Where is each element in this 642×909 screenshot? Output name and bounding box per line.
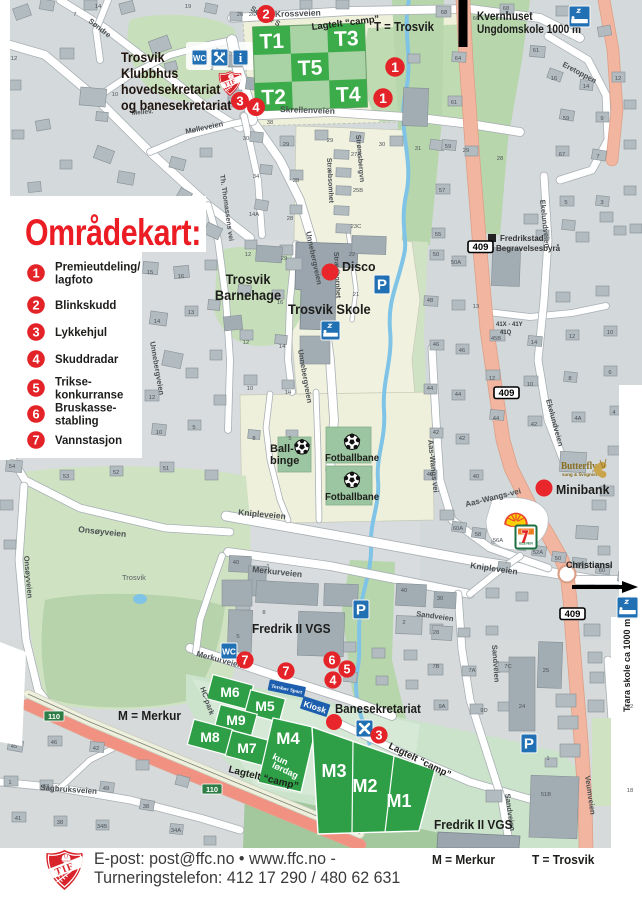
svg-text:25: 25 (543, 668, 549, 674)
svg-text:Lykkehjul: Lykkehjul (55, 326, 107, 339)
svg-text:3: 3 (236, 94, 243, 109)
svg-text:Kvernhuset: Kvernhuset (477, 10, 533, 23)
svg-text:M8: M8 (200, 729, 220, 745)
svg-text:10: 10 (156, 430, 162, 436)
svg-text:46: 46 (51, 740, 57, 746)
svg-text:2: 2 (262, 7, 269, 22)
svg-text:34A: 34A (171, 828, 181, 834)
svg-text:42: 42 (93, 746, 99, 752)
svg-text:55: 55 (435, 232, 441, 238)
svg-text:42: 42 (459, 436, 465, 442)
svg-text:Trosvik: Trosvik (121, 50, 165, 66)
svg-text:Ball-: Ball- (270, 443, 294, 455)
svg-text:38: 38 (57, 820, 63, 826)
svg-text:29: 29 (463, 148, 469, 154)
svg-text:29: 29 (327, 138, 333, 144)
svg-text:M1: M1 (386, 791, 411, 811)
svg-text:60A: 60A (453, 526, 463, 532)
svg-text:1: 1 (379, 90, 387, 106)
svg-text:i: i (239, 51, 243, 65)
svg-text:7: 7 (32, 433, 39, 448)
svg-text:sang & livsgnist: sang & livsgnist (562, 472, 598, 477)
svg-text:14: 14 (95, 4, 102, 10)
svg-text:54: 54 (9, 464, 16, 470)
svg-text:14: 14 (154, 319, 161, 325)
svg-text:M = Merkur: M = Merkur (432, 853, 495, 867)
svg-text:konkurranse: konkurranse (55, 388, 124, 401)
svg-text:21: 21 (353, 292, 359, 298)
svg-text:14: 14 (531, 340, 538, 346)
svg-text:M9: M9 (226, 712, 246, 728)
svg-text:5: 5 (564, 200, 567, 206)
svg-text:Minibank: Minibank (556, 483, 610, 497)
svg-text:26: 26 (237, 12, 243, 18)
svg-text:E-post: post@ffc.no • www.ffc.: E-post: post@ffc.no • www.ffc.no - (94, 850, 336, 868)
svg-text:5: 5 (192, 425, 195, 431)
svg-text:7: 7 (242, 653, 249, 667)
svg-text:49: 49 (103, 786, 109, 792)
svg-text:29: 29 (281, 256, 287, 262)
svg-text:59: 59 (445, 144, 451, 150)
svg-text:22: 22 (349, 252, 355, 258)
svg-text:34: 34 (253, 174, 260, 180)
svg-text:10: 10 (247, 386, 253, 392)
svg-text:14A: 14A (249, 212, 259, 218)
svg-text:1: 1 (391, 59, 399, 75)
svg-text:30: 30 (379, 142, 385, 148)
svg-text:15: 15 (147, 270, 153, 276)
svg-text:29: 29 (283, 142, 289, 148)
svg-text:42: 42 (433, 430, 439, 436)
svg-text:41Q: 41Q (500, 330, 512, 336)
svg-text:1: 1 (32, 266, 39, 281)
svg-text:52A: 52A (533, 550, 543, 556)
svg-text:13: 13 (473, 304, 479, 310)
svg-text:2: 2 (32, 298, 39, 313)
svg-text:T = Trosvik: T = Trosvik (532, 853, 595, 867)
svg-text:46: 46 (433, 342, 439, 348)
svg-text:9D: 9D (480, 708, 487, 714)
svg-text:4: 4 (32, 352, 40, 367)
svg-text:52: 52 (113, 470, 119, 476)
svg-text:10: 10 (112, 92, 118, 98)
svg-text:38: 38 (267, 120, 273, 126)
svg-text:Fredrik II VGS: Fredrik II VGS (434, 818, 513, 832)
svg-text:P: P (377, 277, 387, 294)
svg-text:5: 5 (236, 634, 239, 640)
svg-text:64: 64 (455, 56, 462, 62)
svg-text:46: 46 (459, 348, 465, 354)
svg-text:8: 8 (568, 376, 571, 382)
svg-text:Banesekretariat: Banesekretariat (335, 701, 421, 716)
svg-text:og banesekretariat: og banesekretariat (121, 98, 232, 114)
svg-text:3: 3 (376, 728, 383, 742)
svg-text:50A: 50A (451, 260, 461, 266)
svg-text:3: 3 (600, 200, 603, 206)
svg-text:40: 40 (473, 474, 479, 480)
svg-text:stabling: stabling (55, 414, 99, 427)
svg-text:60: 60 (599, 568, 605, 574)
svg-text:Christiansl: Christiansl (566, 560, 613, 570)
svg-text:5: 5 (344, 662, 351, 676)
svg-text:58: 58 (475, 532, 481, 538)
svg-text:Områdekart:: Områdekart: (25, 212, 201, 254)
svg-text:28: 28 (433, 630, 439, 636)
svg-text:Klubbhus: Klubbhus (121, 66, 178, 82)
svg-text:Fredrik II VGS: Fredrik II VGS (252, 622, 331, 636)
svg-text:Fotballbane: Fotballbane (325, 492, 380, 503)
svg-text:44: 44 (427, 386, 434, 392)
svg-text:T = Trosvik: T = Trosvik (374, 19, 434, 34)
svg-text:M5: M5 (255, 698, 275, 714)
svg-text:50: 50 (433, 252, 439, 258)
svg-text:10: 10 (527, 382, 533, 388)
svg-text:51: 51 (163, 466, 169, 472)
svg-text:18: 18 (627, 788, 633, 794)
svg-text:28: 28 (497, 156, 503, 162)
svg-text:1: 1 (266, 564, 269, 570)
svg-text:12: 12 (149, 395, 155, 401)
svg-text:40: 40 (401, 588, 407, 594)
svg-text:Vannstasjon: Vannstasjon (55, 434, 122, 447)
svg-text:8: 8 (252, 436, 255, 442)
svg-text:M = Merkur: M = Merkur (118, 709, 181, 723)
svg-text:27A: 27A (351, 152, 361, 158)
svg-text:110: 110 (48, 712, 60, 721)
svg-text:Trara skole ca 1000 m: Trara skole ca 1000 m (622, 619, 632, 712)
svg-text:10: 10 (607, 330, 613, 336)
svg-text:409: 409 (499, 388, 515, 399)
svg-text:67: 67 (559, 152, 565, 158)
svg-text:Begravelsesbyrå: Begravelsesbyrå (496, 244, 561, 253)
svg-text:Krossveien: Krossveien (275, 7, 321, 19)
svg-text:51B: 51B (541, 792, 551, 798)
svg-text:Premieutdeling/: Premieutdeling/ (55, 260, 141, 273)
svg-text:5: 5 (288, 436, 291, 442)
svg-text:Disco: Disco (342, 260, 376, 274)
svg-text:68: 68 (441, 10, 447, 16)
svg-text:lagfoto: lagfoto (55, 273, 93, 286)
svg-text:ELEVEN: ELEVEN (519, 541, 533, 545)
svg-text:48: 48 (427, 298, 433, 304)
svg-text:50: 50 (555, 556, 561, 562)
svg-text:45B: 45B (491, 336, 501, 342)
svg-text:12: 12 (615, 76, 621, 82)
svg-text:12: 12 (243, 340, 249, 346)
svg-text:4A: 4A (574, 416, 581, 422)
svg-text:6: 6 (32, 407, 39, 422)
svg-text:56A: 56A (493, 538, 503, 544)
svg-text:1: 1 (546, 756, 549, 762)
svg-text:59: 59 (563, 116, 569, 122)
svg-text:7B: 7B (432, 664, 439, 670)
svg-text:Barnehage: Barnehage (215, 288, 281, 303)
svg-text:Turneringstelefon: 412 17 290: Turneringstelefon: 412 17 290 / 480 62 6… (94, 869, 400, 887)
svg-text:WC: WC (222, 647, 236, 657)
svg-text:62: 62 (577, 562, 583, 568)
svg-text:8: 8 (262, 610, 265, 616)
svg-text:14: 14 (279, 344, 286, 350)
svg-text:16: 16 (551, 76, 557, 82)
svg-text:409: 409 (473, 242, 489, 253)
svg-text:Skuddradar: Skuddradar (55, 353, 119, 366)
svg-text:T5: T5 (297, 56, 323, 80)
svg-text:14: 14 (583, 84, 590, 90)
svg-text:16: 16 (178, 274, 184, 280)
svg-text:M3: M3 (321, 761, 346, 781)
svg-text:3: 3 (32, 325, 39, 340)
svg-text:9: 9 (600, 116, 603, 122)
svg-text:30: 30 (437, 596, 443, 602)
svg-text:53: 53 (63, 474, 69, 480)
svg-text:M7: M7 (237, 740, 257, 756)
svg-text:2: 2 (210, 66, 213, 72)
svg-text:12: 12 (11, 56, 17, 62)
svg-text:Skrellenveien: Skrellenveien (280, 104, 335, 116)
svg-text:42: 42 (531, 422, 537, 428)
svg-text:110: 110 (206, 785, 218, 794)
svg-text:7C: 7C (504, 664, 511, 670)
svg-text:1: 1 (8, 780, 11, 786)
svg-text:40: 40 (427, 472, 433, 478)
svg-text:5: 5 (32, 381, 39, 396)
svg-text:44: 44 (455, 392, 462, 398)
svg-text:T1: T1 (259, 30, 285, 54)
svg-text:28: 28 (287, 216, 293, 222)
svg-text:43: 43 (43, 784, 49, 790)
svg-text:Fredrikstad: Fredrikstad (500, 234, 544, 243)
svg-text:binge: binge (270, 455, 299, 467)
svg-text:7A: 7A (468, 668, 475, 674)
svg-text:41: 41 (15, 816, 21, 822)
svg-text:57: 57 (439, 188, 445, 194)
svg-text:7: 7 (73, 12, 76, 18)
svg-text:Trosvik: Trosvik (226, 272, 272, 287)
svg-text:12: 12 (569, 334, 575, 340)
svg-text:T3: T3 (334, 27, 359, 51)
svg-text:Fotballbane: Fotballbane (325, 453, 380, 464)
svg-text:13: 13 (188, 310, 194, 316)
svg-text:P: P (524, 736, 534, 753)
svg-text:M4: M4 (276, 729, 300, 748)
svg-text:7: 7 (283, 664, 290, 678)
svg-text:6: 6 (329, 653, 336, 667)
svg-text:31: 31 (415, 146, 421, 152)
svg-text:34B: 34B (97, 824, 107, 830)
svg-text:24: 24 (519, 704, 526, 710)
svg-text:12: 12 (245, 252, 251, 258)
svg-text:4: 4 (330, 673, 337, 687)
svg-text:23C: 23C (351, 224, 362, 230)
svg-text:P: P (356, 602, 366, 619)
svg-text:9A: 9A (438, 704, 445, 710)
svg-text:7: 7 (596, 154, 599, 160)
svg-text:30: 30 (243, 136, 249, 142)
svg-text:hovedsekretariat: hovedsekretariat (121, 82, 221, 98)
svg-text:6: 6 (608, 370, 611, 376)
svg-text:28: 28 (293, 178, 299, 184)
svg-text:Trosvik: Trosvik (122, 573, 146, 582)
svg-text:25B: 25B (353, 188, 363, 194)
svg-text:44: 44 (493, 416, 500, 422)
svg-text:Butterfly: Butterfly (561, 461, 597, 472)
svg-text:409: 409 (565, 609, 581, 620)
svg-text:14: 14 (285, 390, 292, 396)
svg-text:Blinkskudd: Blinkskudd (55, 299, 116, 312)
svg-text:Ungdomskole 1000 m: Ungdomskole 1000 m (477, 23, 581, 36)
svg-text:WC: WC (193, 54, 206, 63)
svg-text:M6: M6 (220, 684, 240, 700)
svg-text:Trikse-: Trikse- (55, 375, 92, 388)
svg-text:T4: T4 (336, 83, 362, 107)
svg-text:M2: M2 (352, 776, 377, 796)
svg-text:41X - 41Y: 41X - 41Y (496, 322, 523, 328)
svg-text:40: 40 (233, 560, 239, 566)
svg-text:19: 19 (185, 4, 191, 10)
svg-text:Bruskasse-: Bruskasse- (55, 401, 116, 414)
svg-text:4: 4 (252, 100, 260, 115)
svg-text:38: 38 (143, 804, 149, 810)
svg-text:2: 2 (402, 620, 405, 626)
svg-text:12: 12 (489, 376, 495, 382)
svg-text:Trosvik Skole: Trosvik Skole (288, 302, 371, 317)
svg-text:61: 61 (533, 48, 539, 54)
svg-text:61: 61 (451, 100, 457, 106)
